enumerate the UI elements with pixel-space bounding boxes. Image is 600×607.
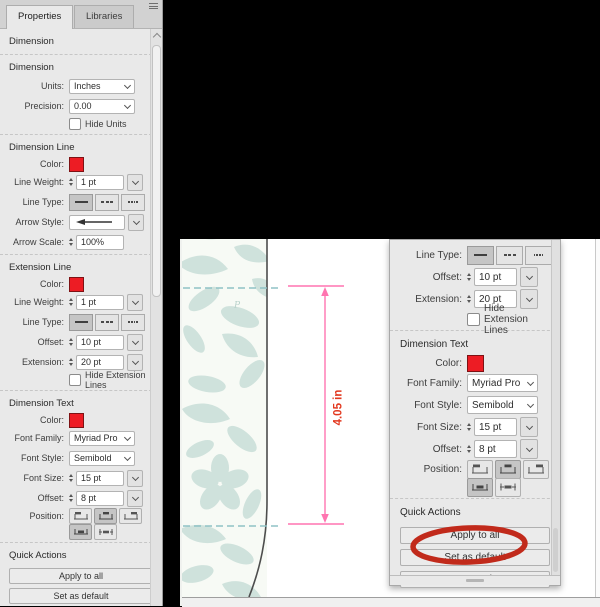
line-type-label: Line Type: xyxy=(0,317,69,327)
color-label: Color: xyxy=(0,279,69,289)
font-family-label: Font Family: xyxy=(390,378,467,389)
position-inline-button[interactable] xyxy=(94,524,117,540)
chevron-down-icon xyxy=(131,357,138,364)
line-type-solid-button[interactable] xyxy=(69,194,93,211)
chevron-down-icon xyxy=(525,444,532,451)
chevron-down-icon xyxy=(131,177,138,184)
font-style-label: Font Style: xyxy=(390,400,467,411)
font-family-select[interactable]: Myriad Pro xyxy=(467,374,538,392)
line-weight-label: Line Weight: xyxy=(0,297,69,307)
line-weight-field[interactable]: 1 pt xyxy=(76,295,124,310)
line-type-dashed-button[interactable] xyxy=(95,314,119,331)
solid-line-icon xyxy=(474,254,487,257)
panel-tab-strip: Properties Libraries xyxy=(0,0,162,29)
font-style-select[interactable]: Semibold xyxy=(467,396,538,414)
scrollbar-thumb[interactable] xyxy=(553,528,558,572)
font-size-label: Font Size: xyxy=(0,473,69,483)
text-offset-dropdown-button[interactable] xyxy=(127,490,143,507)
color-swatch[interactable] xyxy=(467,355,484,372)
annotation-circle-icon xyxy=(407,523,531,567)
position-label: Position: xyxy=(390,464,467,475)
font-style-label: Font Style: xyxy=(0,453,69,463)
arrow-style-dropdown-button[interactable] xyxy=(128,214,144,231)
position-on-line-icon xyxy=(470,480,490,494)
position-above-center-button[interactable] xyxy=(94,508,117,524)
font-style-value: Semibold xyxy=(472,400,514,411)
dotted-line-icon xyxy=(128,201,137,203)
position-inline-button[interactable] xyxy=(495,478,521,497)
offset-field[interactable]: 10 pt xyxy=(474,268,517,286)
position-on-line-button[interactable] xyxy=(69,524,92,540)
line-type-dotted-button[interactable] xyxy=(121,194,145,211)
line-weight-field[interactable]: 1 pt xyxy=(76,175,124,190)
line-type-solid-button[interactable] xyxy=(467,246,494,265)
chevron-down-icon xyxy=(124,433,131,440)
hide-units-label: Hide Units xyxy=(85,119,127,129)
font-family-label: Font Family: xyxy=(0,433,69,443)
position-label: Position: xyxy=(0,511,69,521)
chevron-down-icon xyxy=(131,493,138,500)
text-offset-label: Offset: xyxy=(0,493,69,503)
scrollbar[interactable] xyxy=(551,240,560,576)
units-label: Units: xyxy=(0,81,69,91)
panel-context-title: Dimension xyxy=(0,29,162,52)
scrollbar[interactable] xyxy=(150,29,162,606)
dashed-line-icon xyxy=(101,321,113,323)
stepper-icon[interactable] xyxy=(467,273,471,281)
stepper-icon[interactable] xyxy=(69,178,73,186)
section-header-quick-actions: Quick Actions xyxy=(390,499,560,522)
stepper-icon[interactable] xyxy=(467,445,471,453)
scrollbar-up-icon[interactable] xyxy=(152,33,160,41)
window-right-edge xyxy=(595,239,600,597)
pattern-monogram: P xyxy=(234,301,240,311)
position-above-left-icon xyxy=(72,510,90,522)
color-swatch[interactable] xyxy=(69,277,84,292)
line-type-solid-button[interactable] xyxy=(69,314,93,331)
chevron-down-icon xyxy=(527,400,534,407)
chevron-down-icon xyxy=(124,81,131,88)
stepper-icon[interactable] xyxy=(69,358,73,366)
font-style-value: Semibold xyxy=(74,453,112,463)
offset-label: Offset: xyxy=(0,337,69,347)
line-type-dotted-button[interactable] xyxy=(525,246,552,265)
line-type-label: Line Type: xyxy=(390,250,467,261)
text-offset-field[interactable]: 8 pt xyxy=(76,491,124,506)
dimension-value-label: 4.05 in xyxy=(333,383,346,433)
position-above-left-button[interactable] xyxy=(69,508,92,524)
tab-properties[interactable]: Properties xyxy=(6,5,73,29)
font-size-dropdown-button[interactable] xyxy=(520,417,538,437)
chevron-down-icon xyxy=(124,101,131,108)
dashed-line-icon xyxy=(101,201,113,203)
text-offset-label: Offset: xyxy=(390,444,467,455)
font-style-select[interactable]: Semibold xyxy=(69,451,135,466)
extension-dropdown-button[interactable] xyxy=(127,354,143,371)
precision-select[interactable]: 0.00 xyxy=(69,99,135,114)
left-arrow-icon xyxy=(74,218,114,226)
stepper-icon[interactable] xyxy=(69,338,73,346)
scrollbar-thumb[interactable] xyxy=(152,45,161,297)
position-above-center-button[interactable] xyxy=(495,460,521,479)
solid-line-icon xyxy=(75,321,88,324)
position-on-line-button[interactable] xyxy=(467,478,493,497)
precision-label: Precision: xyxy=(0,101,69,111)
dotted-line-icon xyxy=(128,321,137,323)
line-type-label: Line Type: xyxy=(0,197,69,207)
chevron-down-icon xyxy=(525,272,532,279)
set-as-default-button[interactable]: Set as default xyxy=(9,588,153,604)
font-size-field[interactable]: 15 pt xyxy=(76,471,124,486)
font-size-field[interactable]: 15 pt xyxy=(474,418,517,436)
line-type-dashed-button[interactable] xyxy=(95,194,119,211)
arrow-style-label: Arrow Style: xyxy=(0,217,69,227)
chevron-down-icon xyxy=(132,217,139,224)
offset-label: Offset: xyxy=(390,272,467,283)
arrow-scale-label: Arrow Scale: xyxy=(0,237,69,247)
solid-line-icon xyxy=(75,201,88,204)
position-on-line-icon xyxy=(72,526,90,538)
font-family-select[interactable]: Myriad Pro xyxy=(69,431,135,446)
line-weight-dropdown-button[interactable] xyxy=(127,174,143,191)
hide-extension-lines-checkbox[interactable] xyxy=(467,313,480,326)
hide-extension-lines-label: Hide Extension Lines xyxy=(484,303,538,336)
hide-extension-lines-label: Hide Extension Lines xyxy=(85,370,148,390)
stepper-icon[interactable] xyxy=(69,238,73,246)
color-swatch[interactable] xyxy=(69,413,84,428)
panel-menu-icon[interactable] xyxy=(149,3,158,10)
chevron-down-icon xyxy=(525,294,532,301)
chevron-down-icon xyxy=(131,337,138,344)
line-type-dashed-button[interactable] xyxy=(496,246,523,265)
chevron-down-icon xyxy=(124,453,131,460)
chevron-down-icon xyxy=(525,422,532,429)
hide-units-checkbox[interactable] xyxy=(69,118,81,130)
tab-libraries[interactable]: Libraries xyxy=(74,5,134,28)
chevron-down-icon xyxy=(527,378,534,385)
font-family-value: Myriad Pro xyxy=(472,378,520,389)
precision-value: 0.00 xyxy=(74,101,92,111)
position-above-right-button[interactable] xyxy=(523,460,549,479)
section-header-quick-actions: Quick Actions xyxy=(0,543,162,564)
line-type-dotted-button[interactable] xyxy=(121,314,145,331)
position-above-right-icon xyxy=(526,462,546,476)
arrow-scale-field[interactable]: 100% xyxy=(76,235,124,250)
text-offset-field[interactable]: 8 pt xyxy=(474,440,517,458)
font-size-label: Font Size: xyxy=(390,422,467,433)
chevron-down-icon xyxy=(131,297,138,304)
position-above-right-button[interactable] xyxy=(119,508,142,524)
text-offset-dropdown-button[interactable] xyxy=(520,439,538,459)
zoomed-screenshot: P 4.05 in Line Type: Offset: 10 pt Exten… xyxy=(180,239,600,606)
arrow-style-select[interactable] xyxy=(69,215,125,230)
color-label: Color: xyxy=(390,358,467,369)
dashed-line-icon xyxy=(504,254,516,256)
section-header-dimension-line: Dimension Line xyxy=(0,135,162,156)
offset-dropdown-button[interactable] xyxy=(520,267,538,287)
color-swatch[interactable] xyxy=(69,157,84,172)
position-above-left-button[interactable] xyxy=(467,460,493,479)
stepper-icon[interactable] xyxy=(467,423,471,431)
stepper-icon[interactable] xyxy=(69,474,73,482)
position-above-left-icon xyxy=(470,462,490,476)
panel-footer xyxy=(390,575,560,585)
stepper-icon[interactable] xyxy=(69,494,73,502)
extension-field[interactable]: 20 pt xyxy=(76,355,124,370)
properties-panel: Properties Libraries Dimension Dimension… xyxy=(0,0,163,606)
line-weight-label: Line Weight: xyxy=(0,177,69,187)
position-inline-icon xyxy=(498,480,518,494)
position-inline-icon xyxy=(97,526,115,538)
line-weight-dropdown-button[interactable] xyxy=(127,294,143,311)
position-above-center-icon xyxy=(97,510,115,522)
extension-label: Extension: xyxy=(390,294,467,305)
position-above-center-icon xyxy=(498,462,518,476)
font-size-dropdown-button[interactable] xyxy=(127,470,143,487)
chevron-down-icon xyxy=(131,473,138,480)
color-label: Color: xyxy=(0,415,69,425)
section-header-dimension-text: Dimension Text xyxy=(0,391,162,412)
hide-extension-lines-checkbox[interactable] xyxy=(69,374,81,386)
offset-field[interactable]: 10 pt xyxy=(76,335,124,350)
extension-label: Extension: xyxy=(0,357,69,367)
apply-to-all-button[interactable]: Apply to all xyxy=(9,568,153,584)
units-value: Inches xyxy=(74,81,101,91)
dotted-line-icon xyxy=(534,254,543,256)
section-header-extension-line: Extension Line xyxy=(0,255,162,276)
position-above-right-icon xyxy=(122,510,140,522)
offset-dropdown-button[interactable] xyxy=(127,334,143,351)
units-select[interactable]: Inches xyxy=(69,79,135,94)
color-label: Color: xyxy=(0,159,69,169)
font-family-value: Myriad Pro xyxy=(74,433,118,443)
drag-handle-icon[interactable] xyxy=(466,579,484,582)
section-header-dimension: Dimension xyxy=(0,55,162,76)
stepper-icon[interactable] xyxy=(69,298,73,306)
